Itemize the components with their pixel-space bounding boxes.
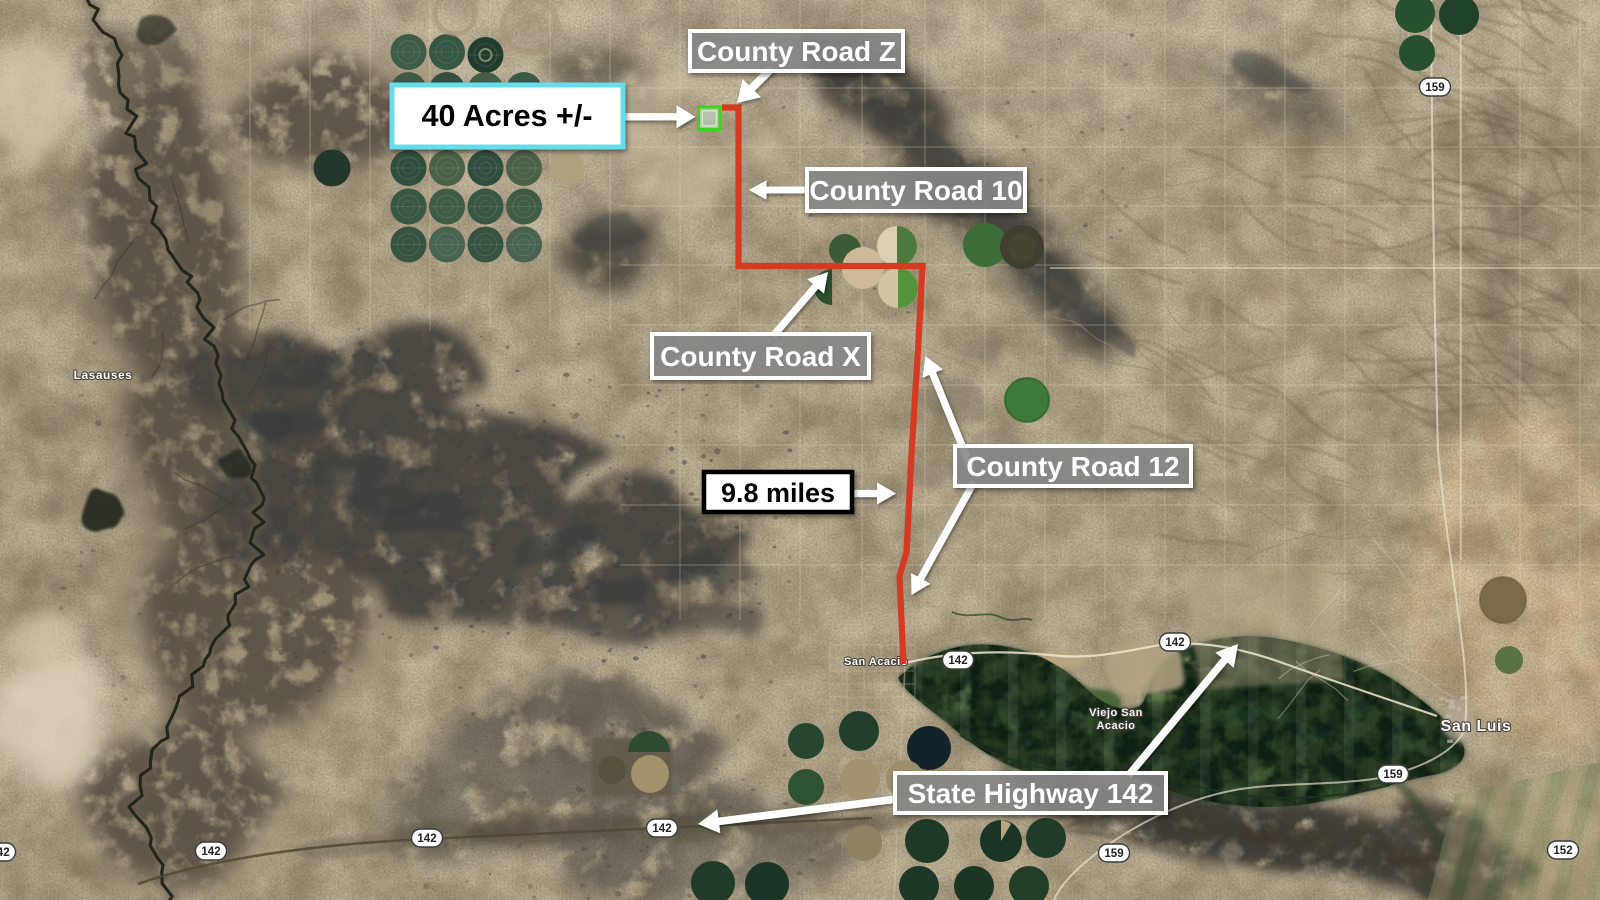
svg-text:County Road X: County Road X: [660, 341, 861, 372]
svg-text:San Luis: San Luis: [1441, 718, 1512, 735]
svg-text:Acacio: Acacio: [1096, 720, 1135, 732]
svg-text:County Road Z: County Road Z: [697, 36, 896, 67]
svg-text:159: 159: [1383, 769, 1402, 781]
svg-text:142: 142: [1165, 637, 1184, 649]
svg-text:142: 142: [201, 846, 220, 858]
svg-text:Viejo San: Viejo San: [1089, 707, 1143, 719]
svg-text:142: 142: [948, 655, 967, 667]
svg-text:152: 152: [1553, 845, 1572, 857]
svg-text:State Highway 142: State Highway 142: [908, 778, 1154, 809]
svg-text:40 Acres +/-: 40 Acres +/-: [422, 99, 593, 133]
svg-text:9.8 miles: 9.8 miles: [721, 478, 835, 508]
svg-text:142: 142: [0, 847, 10, 859]
svg-text:159: 159: [1425, 82, 1444, 94]
svg-text:142: 142: [652, 823, 671, 835]
svg-text:159: 159: [1104, 848, 1123, 860]
svg-text:County Road 12: County Road 12: [966, 451, 1179, 482]
svg-text:San Acacio: San Acacio: [844, 656, 908, 668]
svg-text:142: 142: [417, 833, 436, 845]
svg-text:County Road 10: County Road 10: [809, 175, 1022, 206]
svg-text:Lasauses: Lasauses: [74, 368, 133, 382]
